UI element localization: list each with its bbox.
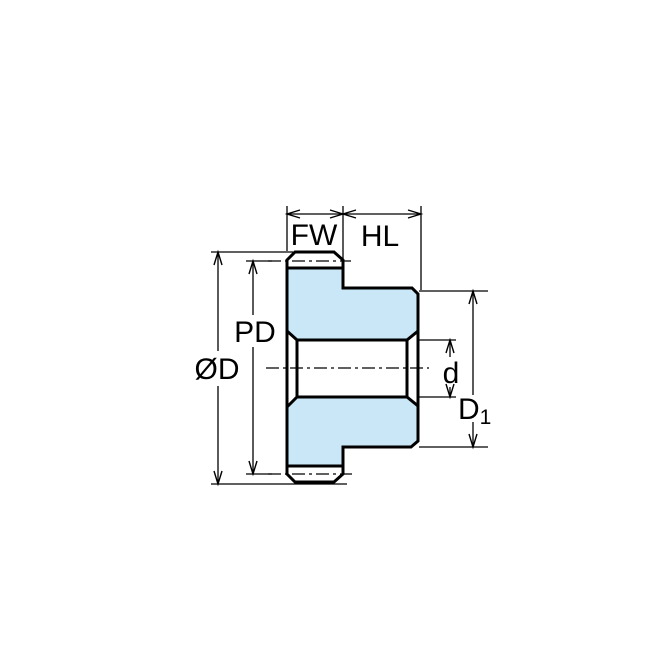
hl-label: HL [361,220,399,253]
fw-label: FW [291,219,338,252]
od-label: ØD [195,353,240,386]
diagram-svg: FW HL PD ØD d D1 [0,0,670,670]
bore-diameter-label: d [443,357,460,390]
pd-label: PD [234,316,276,349]
gear-dimension-diagram: FW HL PD ØD d D1 [0,0,670,670]
hub-diameter-label-main: D [458,393,480,426]
top-tooth [287,252,343,268]
hub-diameter-label-subscript: 1 [480,406,492,429]
